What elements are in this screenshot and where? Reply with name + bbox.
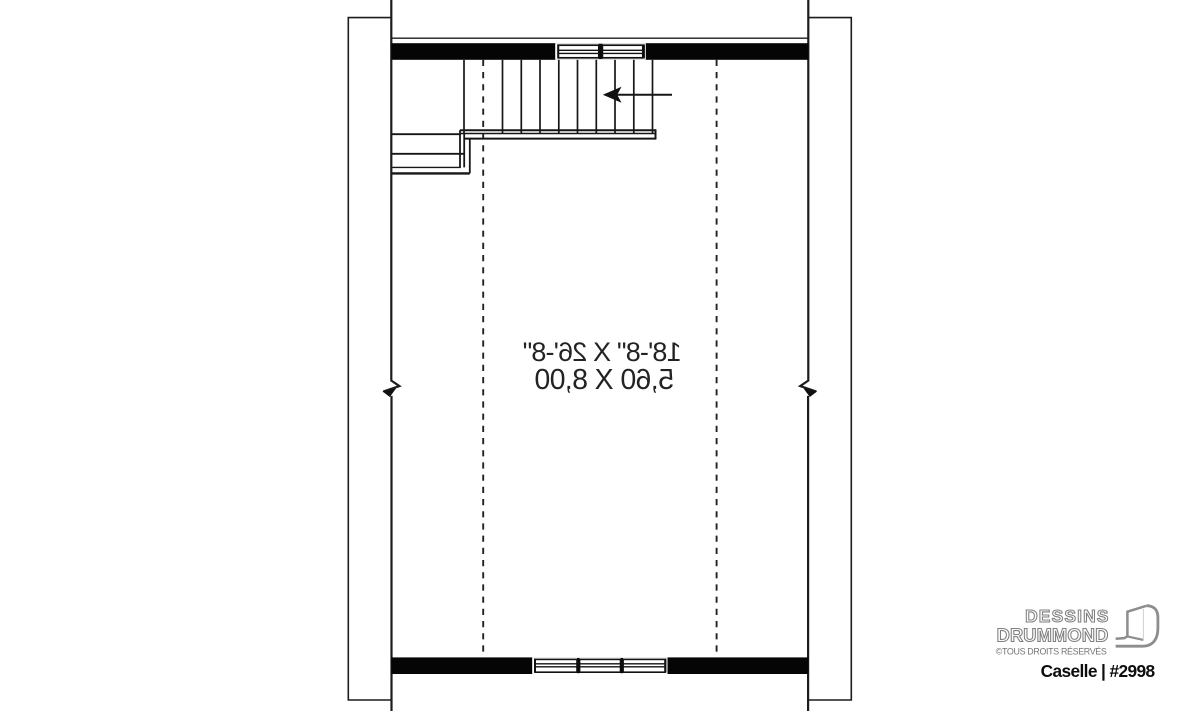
- svg-text:18'-8" X 26'-8": 18'-8" X 26'-8": [523, 337, 682, 367]
- svg-text:Caselle | #2998: Caselle | #2998: [1041, 661, 1156, 681]
- svg-text:©TOUS DROITS RÉSERVÉS: ©TOUS DROITS RÉSERVÉS: [996, 647, 1107, 657]
- svg-text:DRUMMOND: DRUMMOND: [997, 625, 1109, 646]
- svg-text:DESSINS: DESSINS: [1025, 606, 1108, 626]
- svg-text:5,60 X 8,00: 5,60 X 8,00: [534, 364, 674, 396]
